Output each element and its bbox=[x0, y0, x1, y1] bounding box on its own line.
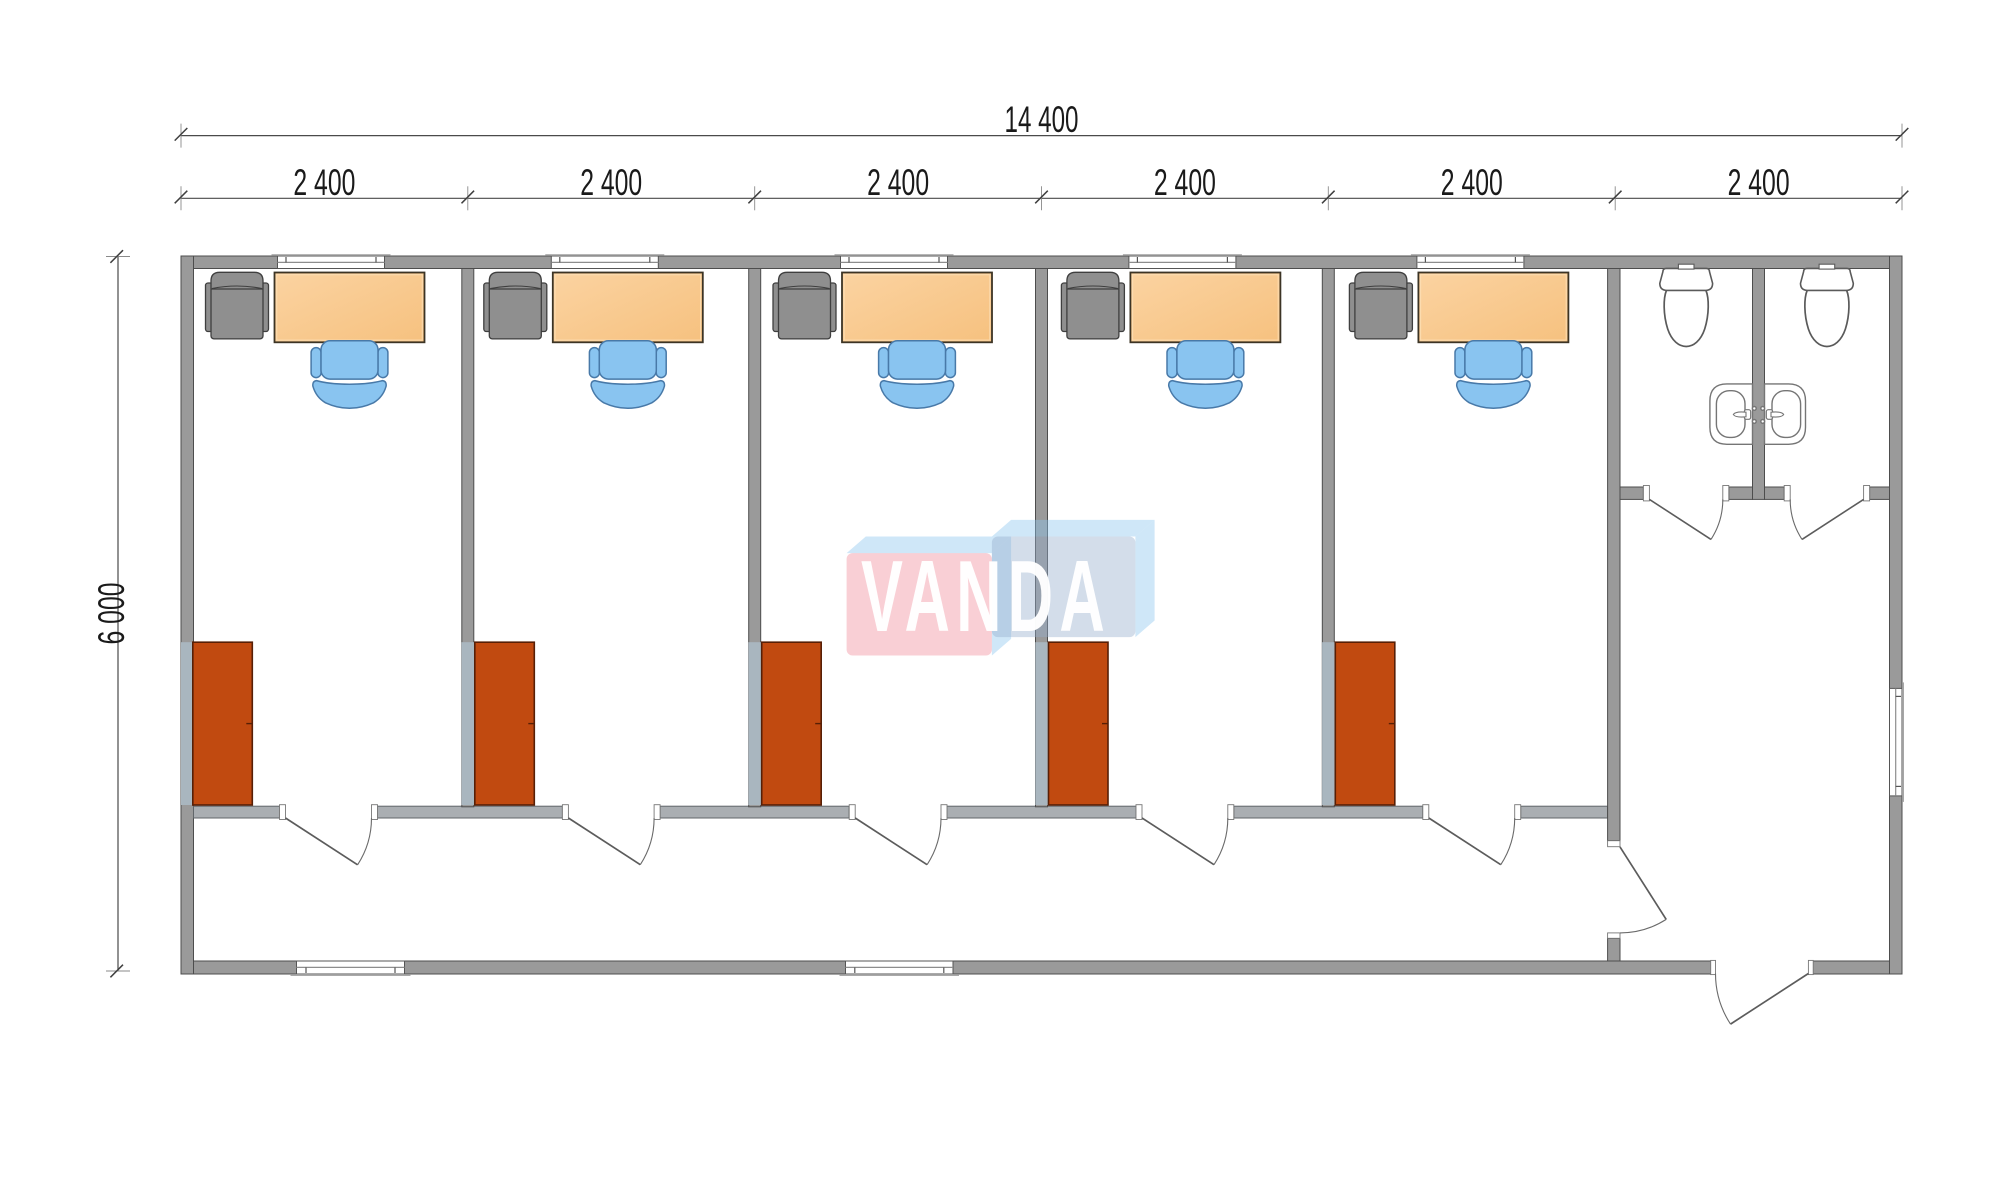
svg-text:2 400: 2 400 bbox=[580, 162, 642, 203]
svg-text:14 400: 14 400 bbox=[1005, 99, 1079, 140]
svg-text:2 400: 2 400 bbox=[293, 162, 355, 203]
svg-text:2 400: 2 400 bbox=[1728, 162, 1790, 203]
svg-text:2 400: 2 400 bbox=[1441, 162, 1503, 203]
svg-text:6 000: 6 000 bbox=[91, 583, 132, 645]
svg-text:2 400: 2 400 bbox=[867, 162, 929, 203]
svg-text:2 400: 2 400 bbox=[1154, 162, 1216, 203]
svg-text:VANDA: VANDA bbox=[861, 541, 1111, 653]
